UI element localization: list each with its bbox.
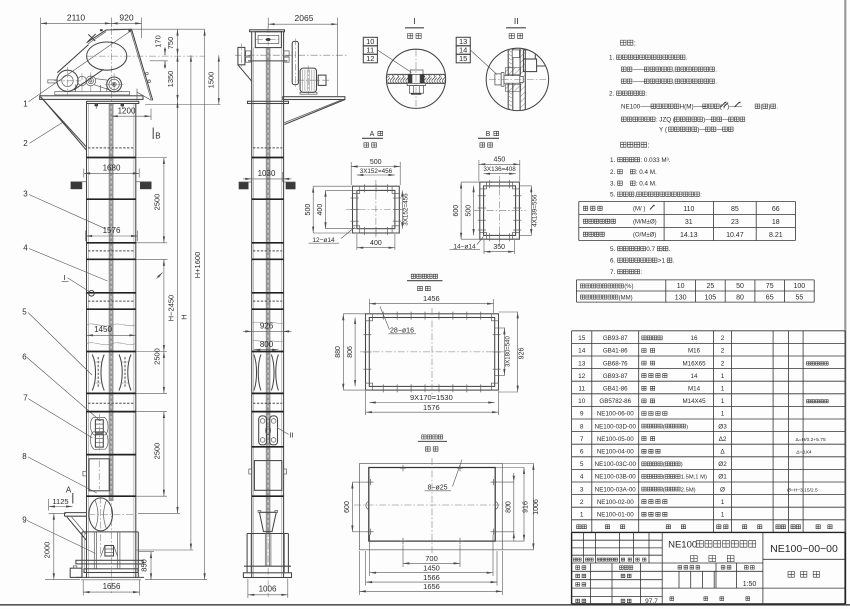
- svg-text:NE100−00−00: NE100−00−00: [770, 543, 838, 555]
- svg-text:.: .: [715, 67, 717, 74]
- svg-text:14−ø14: 14−ø14: [453, 243, 476, 250]
- svg-text:65: 65: [766, 294, 774, 301]
- svg-text:600: 600: [453, 205, 460, 217]
- svg-text:)—: )—: [703, 117, 712, 124]
- svg-text:Δ: Δ: [720, 449, 725, 456]
- svg-text:15: 15: [459, 54, 467, 63]
- svg-text:1.5M,1 M): 1.5M,1 M): [681, 475, 707, 481]
- svg-text:850: 850: [140, 559, 149, 572]
- svg-text:3X180=540: 3X180=540: [505, 336, 511, 368]
- svg-text:500: 500: [370, 159, 382, 166]
- svg-text:1: 1: [580, 512, 584, 519]
- svg-text:: 0.4 M.: : 0.4 M.: [636, 181, 657, 188]
- svg-text:II: II: [514, 16, 519, 26]
- svg-text:3X136=408: 3X136=408: [483, 166, 516, 173]
- svg-text:GB41-86: GB41-86: [603, 386, 628, 393]
- svg-text:: 0.4 M.: : 0.4 M.: [636, 169, 657, 176]
- svg-text:2110: 2110: [67, 13, 86, 23]
- svg-text:Δ=ΔX4: Δ=ΔX4: [796, 450, 812, 456]
- svg-text:2000: 2000: [42, 542, 51, 559]
- svg-text:8.21: 8.21: [769, 232, 783, 239]
- svg-text::: :: [634, 39, 636, 48]
- svg-text:1: 1: [721, 499, 725, 506]
- svg-text:.: .: [776, 104, 778, 111]
- svg-text::: :: [648, 141, 650, 150]
- svg-text:(: (: [663, 487, 665, 493]
- svg-text:NE100——: NE100——: [621, 104, 654, 111]
- svg-text:7: 7: [23, 394, 28, 403]
- svg-text:170: 170: [153, 35, 162, 48]
- svg-text:10.47: 10.47: [726, 232, 744, 239]
- svg-text:(M/M±Ø): (M/M±Ø): [633, 220, 657, 226]
- svg-text:85: 85: [731, 206, 739, 213]
- svg-text:15: 15: [578, 335, 586, 342]
- svg-text:3: 3: [23, 190, 28, 199]
- svg-text:NE100-04-00: NE100-04-00: [597, 449, 634, 456]
- svg-text:4: 4: [23, 244, 28, 253]
- svg-text:(: (: [663, 424, 665, 430]
- svg-text:14.13: 14.13: [680, 232, 698, 239]
- svg-text:Ø: Ø: [720, 486, 725, 493]
- svg-text:1500: 1500: [207, 72, 216, 89]
- svg-text:NE100-01-00: NE100-01-00: [597, 512, 634, 519]
- svg-text:2: 2: [580, 499, 584, 506]
- svg-text:(%): (%): [624, 284, 633, 290]
- svg-text:5.: 5.: [610, 246, 616, 253]
- svg-text:97.7: 97.7: [645, 598, 658, 605]
- svg-text:13: 13: [578, 360, 586, 367]
- svg-text:500: 500: [305, 204, 312, 216]
- svg-text:3X152=456: 3X152=456: [403, 193, 410, 226]
- svg-text:1: 1: [23, 100, 28, 109]
- svg-text:GB5782-86: GB5782-86: [599, 398, 631, 405]
- svg-text:H+1600: H+1600: [193, 252, 202, 278]
- svg-text:M14: M14: [688, 386, 701, 393]
- svg-text:.: .: [715, 79, 717, 86]
- svg-text:1006: 1006: [259, 585, 277, 594]
- svg-text:Ø=H−3.15/2.5: Ø=H−3.15/2.5: [787, 487, 818, 493]
- svg-text:105: 105: [705, 294, 717, 301]
- svg-text:Δ2: Δ2: [719, 436, 727, 443]
- svg-text:(: (: [663, 475, 665, 481]
- svg-text:——: ——: [633, 79, 646, 86]
- svg-text:): ): [681, 462, 683, 468]
- svg-text:130: 130: [675, 294, 687, 301]
- svg-text:(MM): (MM): [619, 295, 633, 301]
- svg-text:350: 350: [493, 244, 505, 251]
- svg-text:920: 920: [119, 13, 133, 23]
- svg-text:1: 1: [721, 373, 725, 380]
- svg-text:8−ø25: 8−ø25: [427, 484, 447, 491]
- svg-text:66: 66: [772, 206, 780, 213]
- svg-text:.: .: [673, 258, 675, 265]
- svg-text:Δ=H/0.2+5.75: Δ=H/0.2+5.75: [796, 437, 826, 443]
- svg-text:Ø2: Ø2: [718, 461, 727, 468]
- svg-text:110: 110: [683, 206, 694, 213]
- svg-text:B: B: [486, 131, 491, 138]
- svg-text:2: 2: [721, 360, 725, 367]
- svg-text:8: 8: [580, 423, 584, 430]
- svg-text:1450: 1450: [423, 563, 440, 572]
- svg-text:500: 500: [465, 205, 472, 217]
- svg-text:H: H: [180, 314, 189, 319]
- svg-text:9: 9: [22, 516, 27, 525]
- svg-text:8: 8: [22, 452, 27, 461]
- svg-text:NE100-03B-00: NE100-03B-00: [595, 474, 636, 481]
- svg-text:Y (: Y (: [659, 127, 668, 134]
- svg-text:2.5M): 2.5M): [681, 487, 696, 493]
- svg-text:880: 880: [335, 346, 342, 358]
- svg-text:0.7: 0.7: [646, 246, 655, 253]
- svg-text:23: 23: [731, 219, 739, 226]
- svg-text:NE100-03C-00: NE100-03C-00: [595, 461, 637, 468]
- svg-text:1: 1: [721, 398, 725, 405]
- svg-text:800: 800: [260, 340, 274, 349]
- svg-text:80: 80: [736, 294, 744, 301]
- svg-text::: :: [700, 192, 702, 199]
- svg-text:(O/M±Ø): (O/M±Ø): [633, 233, 656, 239]
- svg-text:400: 400: [370, 240, 382, 247]
- svg-text:6: 6: [22, 353, 27, 362]
- svg-text:M14X45: M14X45: [682, 398, 706, 405]
- svg-text:5: 5: [580, 461, 584, 468]
- svg-text:1125: 1125: [52, 497, 68, 506]
- svg-text:2500: 2500: [153, 194, 162, 211]
- svg-text:2065: 2065: [295, 13, 314, 23]
- svg-text:1: 1: [721, 512, 725, 519]
- svg-text:25: 25: [706, 283, 714, 290]
- svg-text:NE100-03A-00: NE100-03A-00: [595, 486, 636, 493]
- svg-text:1030: 1030: [258, 169, 276, 178]
- svg-text:(M/ ): (M/ ): [633, 207, 645, 213]
- svg-text:1:50: 1:50: [743, 581, 757, 588]
- svg-text:I: I: [413, 16, 415, 26]
- svg-text:1.: 1.: [609, 55, 615, 62]
- svg-text:B: B: [155, 132, 160, 141]
- svg-text:: JZQ (: : JZQ (: [656, 117, 676, 124]
- svg-text:3.: 3.: [610, 181, 616, 188]
- svg-text:9X170=1530: 9X170=1530: [410, 393, 453, 402]
- svg-text:4X139=556: 4X139=556: [532, 194, 539, 227]
- svg-text:A: A: [370, 131, 375, 138]
- svg-text:3X152=456: 3X152=456: [360, 168, 393, 175]
- svg-text:926: 926: [519, 348, 526, 360]
- svg-text:2: 2: [23, 139, 28, 148]
- svg-text:1456: 1456: [423, 294, 440, 303]
- svg-text:600: 600: [344, 501, 351, 513]
- svg-text:): ): [686, 424, 688, 430]
- svg-text:2: 2: [721, 348, 725, 355]
- svg-text:1566: 1566: [423, 573, 440, 582]
- svg-text:18: 18: [772, 219, 780, 226]
- svg-text:800: 800: [505, 501, 512, 513]
- svg-text:2: 2: [721, 335, 725, 342]
- svg-text:1.: 1.: [610, 157, 616, 164]
- svg-text:16: 16: [691, 335, 698, 342]
- svg-text:12−ø14: 12−ø14: [312, 237, 335, 244]
- svg-text:14: 14: [578, 348, 586, 355]
- svg-text:GB68-76: GB68-76: [603, 360, 628, 367]
- svg-text:50: 50: [736, 283, 744, 290]
- svg-text:3: 3: [580, 486, 584, 493]
- svg-text:2500: 2500: [153, 443, 162, 460]
- svg-text:Ø3: Ø3: [718, 423, 727, 430]
- svg-text:1656: 1656: [423, 582, 440, 591]
- svg-text::: :: [645, 91, 647, 98]
- svg-text:NE100-02-00: NE100-02-00: [597, 499, 634, 506]
- svg-text:: 0.033 M³.: : 0.033 M³.: [640, 157, 670, 164]
- svg-text:GB93-87: GB93-87: [603, 373, 628, 380]
- svg-text:,: ,: [635, 192, 637, 199]
- svg-text:.: .: [669, 246, 671, 253]
- svg-text:12: 12: [366, 54, 374, 63]
- svg-text:——: ——: [633, 67, 646, 74]
- svg-text:1656: 1656: [103, 582, 121, 591]
- svg-text:6: 6: [580, 449, 584, 456]
- svg-text:806: 806: [347, 346, 354, 358]
- svg-text:5.: 5.: [610, 192, 616, 199]
- svg-text:1006: 1006: [533, 499, 540, 515]
- svg-text:9: 9: [580, 411, 584, 418]
- svg-text:)—: )—: [697, 127, 706, 134]
- svg-text:55: 55: [795, 294, 803, 301]
- svg-text:Ø1: Ø1: [718, 474, 727, 481]
- svg-text:>1: >1: [658, 258, 666, 265]
- svg-text:7: 7: [580, 436, 584, 443]
- svg-text:5: 5: [22, 308, 27, 317]
- svg-text:): ): [768, 104, 770, 111]
- svg-text:28−ø16: 28−ø16: [390, 327, 414, 334]
- svg-text:A: A: [66, 486, 72, 495]
- svg-text:450: 450: [494, 157, 506, 164]
- svg-text:NE100-06-00: NE100-06-00: [597, 411, 634, 418]
- svg-text:GB93-87: GB93-87: [603, 335, 628, 342]
- svg-text:1: 1: [721, 386, 725, 393]
- svg-text:M16X65: M16X65: [682, 360, 706, 367]
- svg-text:(: (: [663, 462, 665, 468]
- svg-text:750: 750: [166, 37, 175, 50]
- svg-text:2.: 2.: [610, 169, 616, 176]
- svg-text::: :: [640, 269, 642, 276]
- svg-text:7.: 7.: [610, 269, 616, 276]
- svg-text:10: 10: [578, 398, 586, 405]
- svg-text:GB41-86: GB41-86: [603, 348, 628, 355]
- svg-text:H−2450: H−2450: [166, 295, 175, 321]
- svg-text:1450: 1450: [94, 325, 112, 334]
- svg-text:75: 75: [766, 283, 774, 290]
- svg-text:1350: 1350: [166, 71, 175, 88]
- svg-text:1576: 1576: [103, 226, 121, 235]
- svg-text:400: 400: [317, 204, 324, 216]
- svg-text:926: 926: [260, 321, 274, 330]
- svg-text:11: 11: [578, 386, 585, 393]
- svg-text:10: 10: [677, 283, 685, 290]
- svg-text:700: 700: [425, 554, 438, 563]
- svg-text:31: 31: [685, 219, 693, 226]
- svg-text:NE100: NE100: [668, 540, 697, 551]
- svg-text:2500: 2500: [153, 348, 162, 365]
- svg-text:NE100-03D-00: NE100-03D-00: [595, 423, 637, 430]
- svg-text:M16: M16: [688, 348, 701, 355]
- svg-text:NE100-05-00: NE100-05-00: [597, 436, 634, 443]
- svg-text:1200: 1200: [118, 107, 136, 116]
- svg-text:14: 14: [691, 373, 698, 380]
- svg-text:I: I: [63, 273, 65, 282]
- svg-text:916: 916: [523, 501, 530, 513]
- svg-text:12: 12: [578, 373, 586, 380]
- svg-text:2.: 2.: [609, 91, 615, 98]
- svg-text:100: 100: [794, 283, 806, 290]
- svg-text:1680: 1680: [103, 164, 121, 173]
- svg-text:,: ,: [673, 79, 675, 86]
- svg-text:1576: 1576: [423, 403, 440, 412]
- svg-text:1: 1: [721, 411, 725, 418]
- svg-text:.: .: [686, 55, 688, 62]
- svg-text:II: II: [289, 431, 293, 440]
- svg-text:6.: 6.: [610, 258, 616, 265]
- svg-text:,: ,: [673, 67, 675, 74]
- svg-text:4: 4: [580, 474, 584, 481]
